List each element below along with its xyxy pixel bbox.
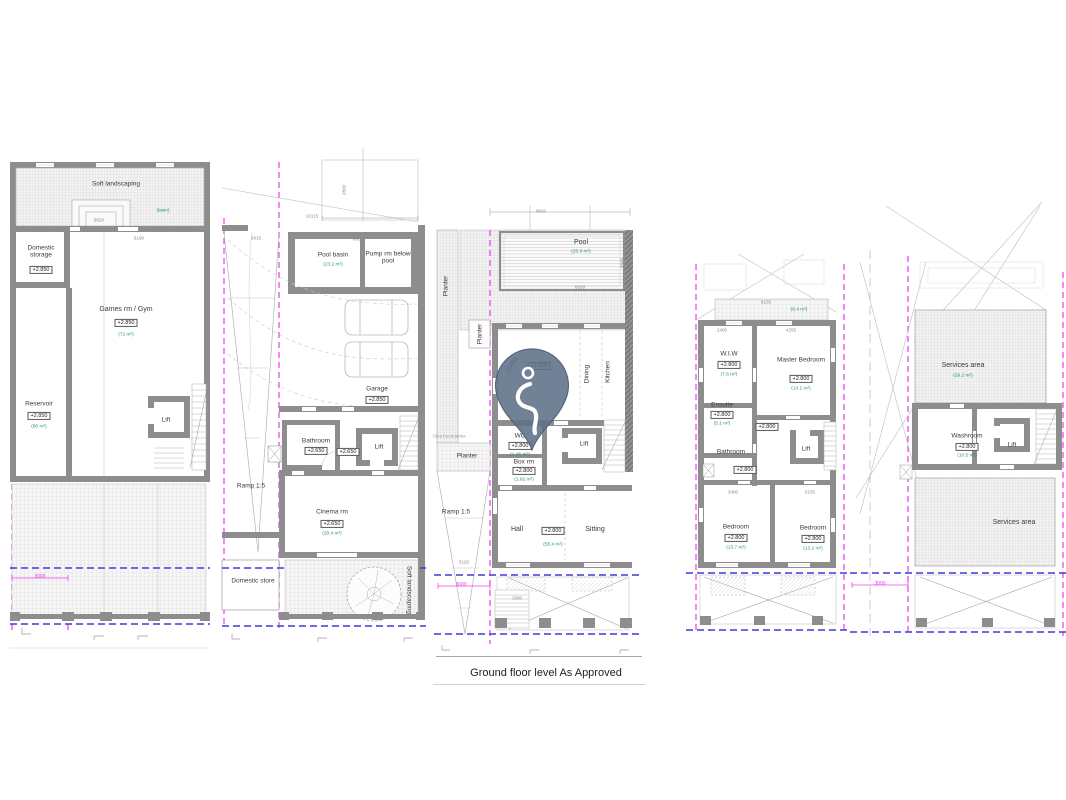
dimension-label: 6030 <box>575 284 585 289</box>
level-badge: +2.800 <box>956 443 979 451</box>
room-label-reservoir: Reservoir <box>25 400 53 407</box>
floor-plan-sheet: Soft landscaping (lawn) 9620 6190 Domest… <box>0 0 1066 800</box>
dimension-label: 9135 <box>761 299 771 304</box>
plan-4-first-floor-drawing <box>686 248 848 640</box>
dimension-label-magenta: 3000 <box>874 582 885 588</box>
area-label: (8.4 m²) <box>791 307 808 312</box>
dimension-label: 10115 <box>306 213 318 218</box>
level-badge: +2.850 <box>28 412 51 420</box>
level-badge: +2.800 <box>734 466 757 474</box>
room-label-lift: Lift <box>375 443 384 450</box>
area-label-lawn: (lawn) <box>156 208 169 213</box>
caption-rule-bottom <box>433 684 645 685</box>
dimension-label: 4320 <box>830 362 835 372</box>
room-label-bedroom: Bedroom <box>723 523 749 530</box>
ramp-lines <box>224 233 279 552</box>
room-label-bathroom: Bathroom <box>717 448 745 455</box>
level-badge: +2.800 <box>718 361 741 369</box>
room-label-domestic-store: Domestic store <box>231 577 274 584</box>
duct-shaft <box>703 464 714 477</box>
forecourt-hatch <box>12 484 206 616</box>
room-label-lift: Lift <box>162 416 171 423</box>
area-label: (10.5 m²) <box>957 453 976 458</box>
room-label-kitchen: Kitchen <box>604 361 611 383</box>
area-label: (72 m²) <box>118 332 133 337</box>
area-label: (13.7 m²) <box>726 545 745 550</box>
room-label-ramp: Ramp 1:5 <box>237 482 265 489</box>
room-label-bathroom: Bathroom <box>302 437 330 444</box>
level-badge: +2.850 <box>366 396 389 404</box>
room-label-wiw: W.I.W <box>720 350 737 357</box>
room-label-pool-basin: Pool basin <box>318 251 348 258</box>
area-label: (5.1 m²) <box>714 421 731 426</box>
level-badge: +2.650 <box>321 520 344 528</box>
dimension-label: 2800 <box>341 185 346 195</box>
level-badge: +2.800 <box>756 423 779 431</box>
level-badge: +2.800 <box>725 534 748 542</box>
room-label-bedroom: Bedroom <box>800 524 826 531</box>
level-badge: +2.800 <box>802 535 825 543</box>
area-label: (1.45 m²) <box>510 452 529 457</box>
plan-caption: Ground floor level As Approved <box>470 667 622 679</box>
location-pin-marker[interactable] <box>492 347 572 453</box>
room-label-ensuite: Ensuite <box>711 401 733 408</box>
room-label-washroom: Washroom <box>951 432 982 439</box>
level-badge: +2.850 <box>30 266 53 274</box>
room-label-lift: Lift <box>580 440 589 447</box>
dimension-label: 3400 <box>728 489 738 494</box>
area-label: (13.2 m²) <box>803 546 822 551</box>
room-label-soft-landscaping: Soft landscaping <box>86 180 146 187</box>
level-badge: +2.650 <box>305 447 328 455</box>
area-label: (29.2 m²) <box>953 373 972 378</box>
dimension-label: 4255 <box>786 327 796 332</box>
room-label-pump-rm: Pump rm below pool <box>365 251 411 266</box>
room-label-planter: Planter <box>476 324 483 345</box>
dimension-label: 1500 <box>512 595 522 600</box>
room-label-planter: Planter <box>442 276 449 297</box>
room-label-master-bedroom: Master Bedroom <box>773 356 829 363</box>
room-label-soft-landscaping: Soft landscaping <box>405 566 412 614</box>
area-label: (55.4 m²) <box>543 542 562 547</box>
dimension-label: 6190 <box>134 235 144 240</box>
room-label-sitting: Sitting <box>585 526 604 534</box>
level-badge: +2.650 <box>337 448 360 456</box>
staircase <box>398 414 420 470</box>
area-label: (14.1 m²) <box>791 386 810 391</box>
room-label-lift: Lift <box>1008 441 1017 448</box>
column-pads <box>700 616 823 625</box>
corner-ticks <box>442 645 629 654</box>
dimension-label-magenta: 3000 <box>455 583 466 589</box>
staircase <box>1034 407 1058 464</box>
ramp-lines <box>437 471 490 634</box>
dimension-label: 3500 <box>619 258 624 268</box>
area-label: (23.2 m²) <box>323 262 342 267</box>
bathroom-walls <box>282 420 340 470</box>
caption-rule-top <box>436 656 642 657</box>
room-label-services-area: Services area <box>993 519 1036 527</box>
room-label-dining: Dining <box>583 365 590 383</box>
area-label: (1.82 m²) <box>514 477 533 482</box>
room-label-hall: Hall <box>511 526 523 534</box>
room-label-games-gym: Games rm / Gym <box>99 306 152 314</box>
room-label-garage: Garage <box>366 385 388 392</box>
dimension-label: 3120 <box>459 559 469 564</box>
dimension-label: 2400 <box>717 327 727 332</box>
room-label-lift: Lift <box>802 445 811 452</box>
room-label-ramp: Ramp 1:5 <box>442 508 470 515</box>
duct-shaft <box>900 465 912 479</box>
area-label: (7.6 m²) <box>721 372 738 377</box>
pool-outline <box>500 232 624 290</box>
level-badge: +2.800 <box>542 527 565 535</box>
projection-outline <box>322 160 418 220</box>
planter-strip <box>715 299 828 320</box>
dimension-label: 6060 <box>353 236 363 241</box>
duct-shaft <box>268 446 281 462</box>
area-label: (80 m²) <box>31 424 46 429</box>
staircase <box>824 422 836 470</box>
room-label-planter: Planter <box>457 452 478 459</box>
pin-body[interactable] <box>496 349 569 450</box>
level-badge: +2.850 <box>115 319 138 327</box>
area-label: (20.4 m²) <box>322 531 341 536</box>
level-badge: +2.800 <box>513 467 536 475</box>
area-label: (26.9 m²) <box>571 249 590 254</box>
room-label-pool: Pool <box>574 239 588 247</box>
planter-strip <box>437 230 458 443</box>
note-label: Olea boundaries <box>432 433 465 438</box>
party-wall <box>625 230 633 472</box>
dimension-label: 9620 <box>94 217 104 222</box>
plan-2-lower-ground-drawing <box>222 148 426 648</box>
dimension-label: 3615 <box>251 235 261 240</box>
dimension-label-magenta: 3000 <box>34 575 45 581</box>
dimension-label: 9620 <box>536 208 546 213</box>
corner-ticks <box>232 634 413 642</box>
services-area-hatch <box>915 310 1046 403</box>
room-label-box-rm: Box rm <box>514 458 535 465</box>
staircase <box>602 418 627 472</box>
dimension-label: 5235 <box>805 489 815 494</box>
corner-ticks <box>22 628 148 640</box>
room-label-services-area: Services area <box>942 362 985 370</box>
room-label-cinema: Cinema rm <box>316 508 348 515</box>
level-badge: +2.800 <box>790 375 813 383</box>
room-label-domestic-storage: Domestic storage <box>17 245 65 260</box>
car-outlines <box>345 300 408 377</box>
level-badge: +2.800 <box>711 411 734 419</box>
